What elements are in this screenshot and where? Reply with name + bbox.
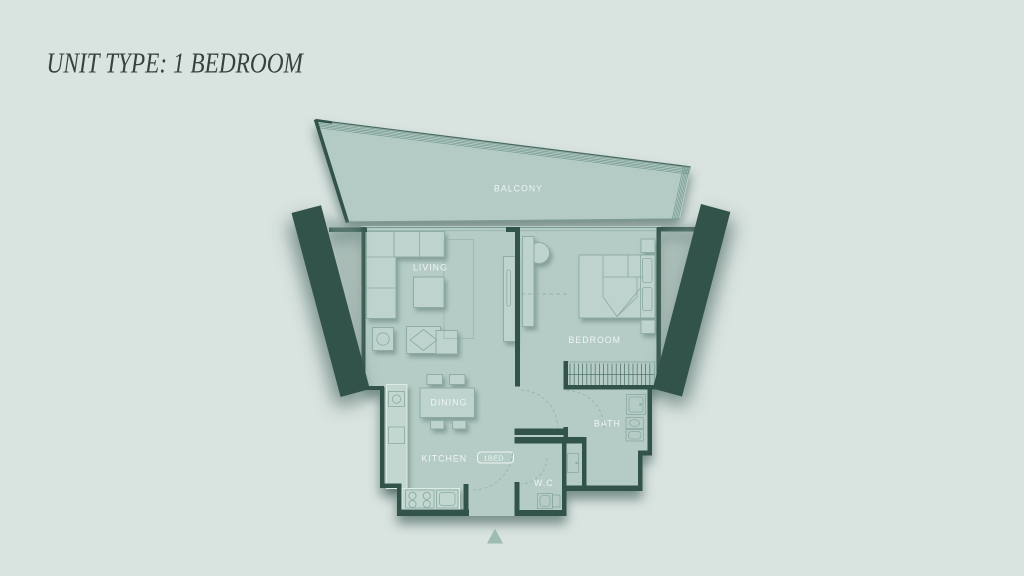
svg-text:1BED: 1BED [484, 454, 504, 463]
svg-text:LIVING: LIVING [413, 263, 448, 273]
svg-text:UNIT TYPE: 1 BEDROOM: UNIT TYPE: 1 BEDROOM [47, 47, 305, 79]
svg-text:BEDROOM: BEDROOM [569, 335, 621, 345]
svg-text:BALCONY: BALCONY [494, 184, 543, 194]
svg-text:DINING: DINING [431, 398, 468, 408]
svg-text:W.C: W.C [534, 478, 554, 488]
svg-text:BATH: BATH [594, 419, 621, 429]
svg-text:KITCHEN: KITCHEN [422, 454, 468, 464]
